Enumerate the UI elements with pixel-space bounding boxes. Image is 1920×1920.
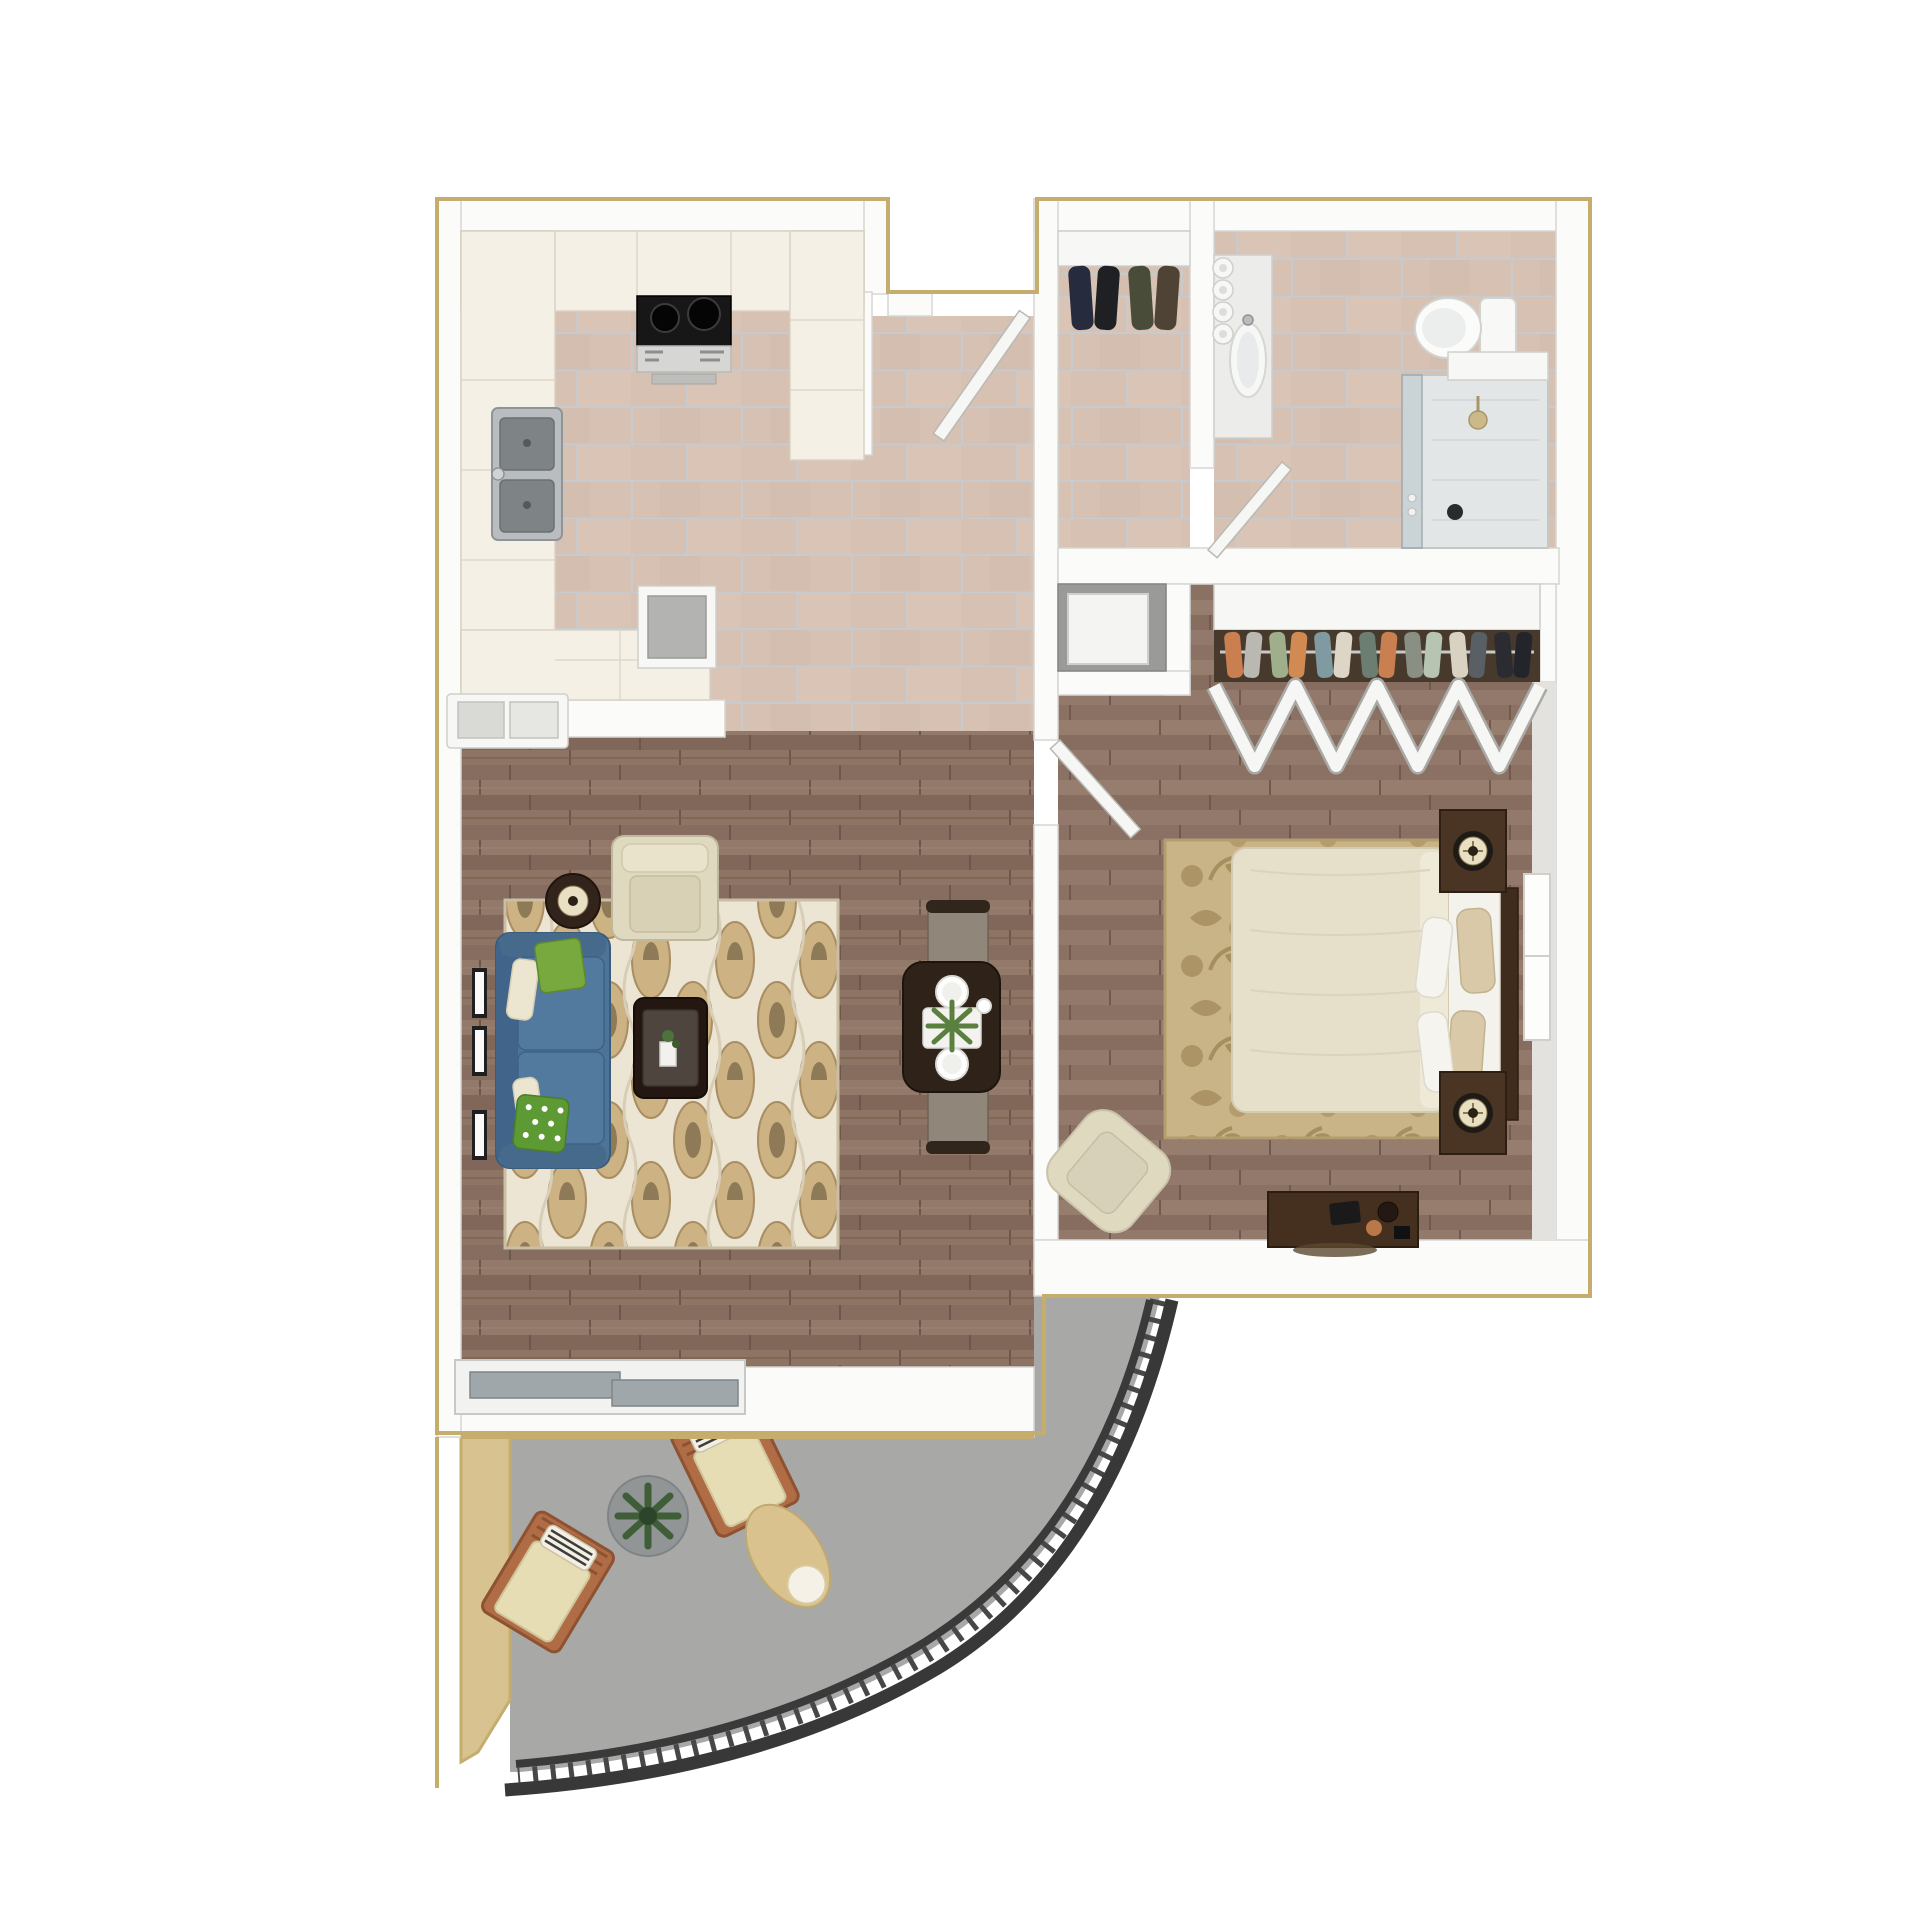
wardrobe-shelf bbox=[1214, 584, 1540, 630]
bathroom-toilet bbox=[1415, 298, 1516, 358]
kitchen-passthrough-ledge bbox=[447, 694, 568, 748]
dining-chair-top bbox=[926, 900, 990, 968]
kitchen-stove bbox=[637, 296, 731, 384]
hanging-coat bbox=[1154, 265, 1180, 330]
side-table bbox=[546, 874, 600, 928]
bed-pillow-tan-1 bbox=[1456, 908, 1496, 994]
bedroom-dresser bbox=[1268, 1192, 1418, 1257]
kitchen-sink bbox=[492, 408, 562, 540]
bathroom-faucet-icon bbox=[1243, 315, 1253, 325]
laptop-icon bbox=[1329, 1200, 1361, 1225]
sofa-pillow-green-dotted bbox=[512, 1094, 569, 1153]
floor-plan-svg bbox=[0, 0, 1920, 1920]
kitchen-faucet-icon bbox=[492, 468, 504, 480]
utility-closet bbox=[1058, 584, 1166, 671]
dining-centerpiece-plant-icon bbox=[928, 1002, 976, 1050]
shower-drain-icon bbox=[1447, 504, 1463, 520]
hanging-coat bbox=[1094, 265, 1120, 330]
sofa bbox=[496, 933, 610, 1168]
wall-utility-bottom bbox=[1058, 671, 1190, 695]
bathroom-vanity bbox=[1213, 255, 1272, 438]
wall-right bbox=[1556, 199, 1590, 1296]
balcony-plant-icon bbox=[618, 1486, 678, 1546]
utility-appliance bbox=[1068, 594, 1148, 664]
entry-hall-floor-tile bbox=[725, 316, 1034, 755]
wall-left bbox=[437, 199, 461, 1437]
wall-notch-bottom bbox=[888, 292, 932, 316]
living-armchair bbox=[612, 836, 718, 940]
coat-closet-shelf bbox=[1058, 231, 1190, 266]
floor-plan-canvas bbox=[0, 0, 1920, 1920]
wall-frames bbox=[472, 968, 487, 1160]
wall-wardrobe-right bbox=[1540, 584, 1556, 682]
hanging-coat bbox=[1068, 265, 1094, 330]
dining-chair-bottom bbox=[926, 1086, 990, 1154]
balcony-table bbox=[608, 1476, 688, 1556]
bathroom-shower bbox=[1402, 352, 1548, 548]
sofa-throw-green bbox=[534, 938, 587, 994]
sliding-balcony-door bbox=[455, 1360, 745, 1414]
shower-head-icon bbox=[1469, 411, 1487, 429]
kitchen-pantry-box bbox=[638, 586, 716, 668]
nightstand-top bbox=[1440, 810, 1506, 892]
hanging-coat bbox=[1128, 265, 1154, 330]
wall-top-kitchen bbox=[437, 199, 888, 231]
wall-notch-left bbox=[864, 199, 888, 294]
nightstand-bottom bbox=[1440, 1072, 1506, 1154]
wall-bath-closet-band bbox=[1058, 548, 1559, 584]
coffee-table bbox=[634, 998, 707, 1098]
kitchen-counter-right-column bbox=[790, 231, 864, 460]
wall-top-right bbox=[1034, 199, 1590, 231]
bedroom-window bbox=[1524, 874, 1550, 1040]
wall-bath-divider bbox=[1190, 199, 1214, 468]
